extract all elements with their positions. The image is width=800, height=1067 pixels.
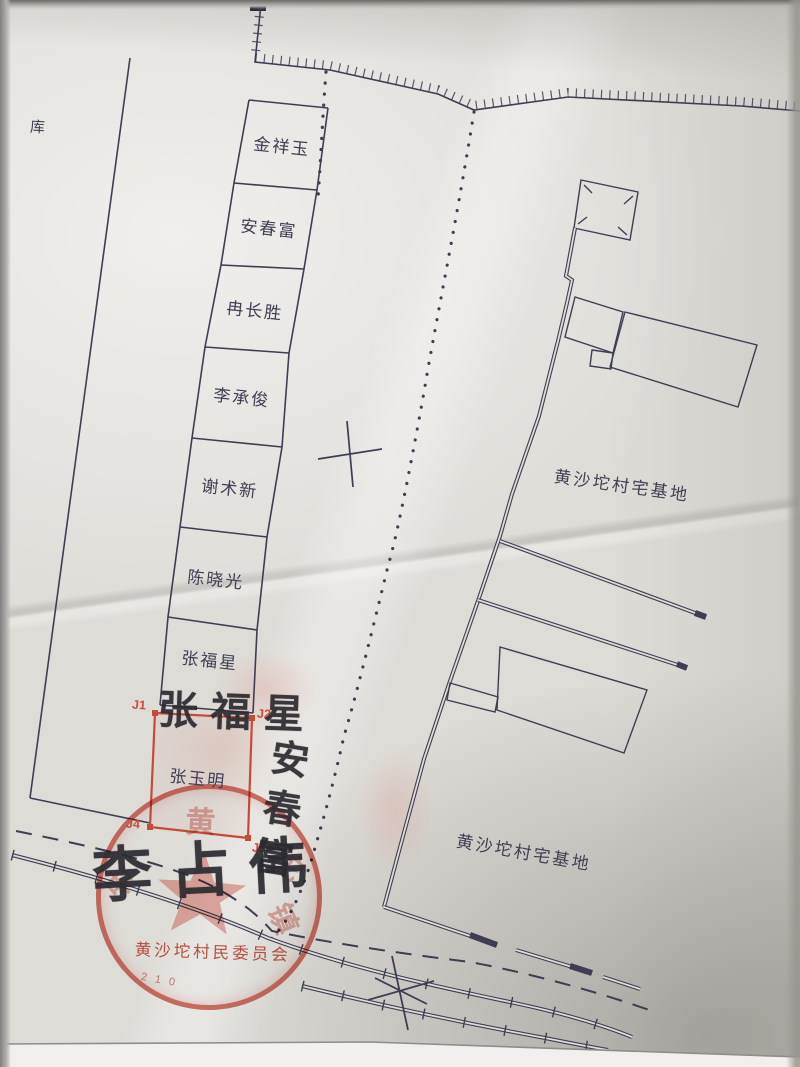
lower-buildings xyxy=(447,647,647,753)
signature-li-zhanwei: 李占伟 xyxy=(90,816,328,915)
photographed-map: 中 黄 坨 镇 黄沙坨村民委员会 210 库 金祥玉 安春富 冉长胜 李承俊 谢… xyxy=(0,0,800,1067)
corner-label-j1: J1 xyxy=(132,698,147,713)
signature-zhang-fuxing: 张福星 xyxy=(157,677,318,741)
hatched-boundary-line xyxy=(250,0,800,111)
cross-mark-center xyxy=(318,421,382,487)
cross-mark-lower xyxy=(368,956,434,1030)
warehouse-label: 库 xyxy=(29,116,45,138)
railway-line-2 xyxy=(302,986,608,1050)
upper-buildings xyxy=(565,180,757,407)
